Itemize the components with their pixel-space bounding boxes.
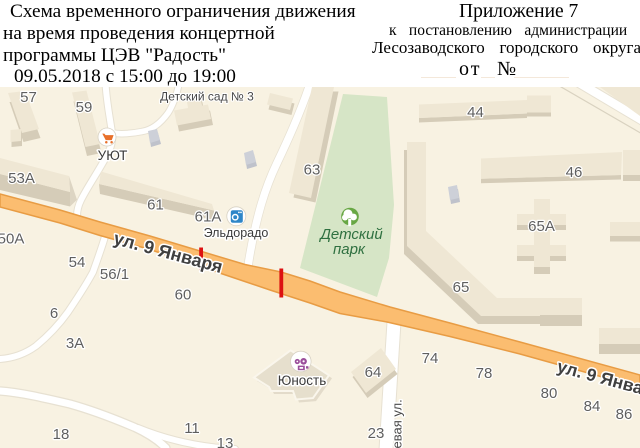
svg-text:59: 59 (76, 99, 93, 116)
svg-text:65: 65 (453, 279, 470, 296)
svg-text:50A: 50A (0, 231, 24, 248)
svg-text:61: 61 (147, 197, 164, 214)
svg-text:44: 44 (467, 104, 484, 121)
svg-text:11: 11 (184, 420, 200, 437)
svg-text:56/1: 56/1 (100, 266, 129, 283)
svg-text:84: 84 (584, 398, 601, 415)
svg-text:61A: 61A (195, 209, 222, 226)
svg-text:46: 46 (566, 164, 583, 181)
svg-text:80: 80 (541, 385, 558, 402)
svg-text:64: 64 (365, 364, 382, 381)
svg-text:УЮТ: УЮТ (98, 148, 128, 163)
svg-text:3A: 3A (66, 335, 84, 352)
svg-text:парк: парк (333, 241, 366, 258)
svg-text:18: 18 (53, 426, 70, 443)
svg-text:53A: 53A (8, 170, 35, 187)
svg-text:Эльдорадо: Эльдорадо (204, 226, 269, 240)
svg-text:13: 13 (217, 435, 234, 448)
svg-text:евая ул.: евая ул. (390, 399, 405, 448)
svg-text:54: 54 (69, 254, 86, 271)
svg-text:57: 57 (20, 89, 37, 106)
svg-text:63: 63 (304, 162, 321, 179)
svg-text:78: 78 (476, 365, 493, 382)
svg-text:65A: 65A (528, 218, 555, 235)
svg-text:86: 86 (616, 406, 633, 423)
svg-text:Детский сад № 3: Детский сад № 3 (160, 90, 254, 104)
svg-text:60: 60 (175, 287, 192, 304)
svg-text:Юность: Юность (278, 373, 327, 388)
svg-text:74: 74 (422, 350, 439, 367)
svg-text:23: 23 (368, 425, 385, 442)
svg-text:6: 6 (50, 305, 58, 322)
